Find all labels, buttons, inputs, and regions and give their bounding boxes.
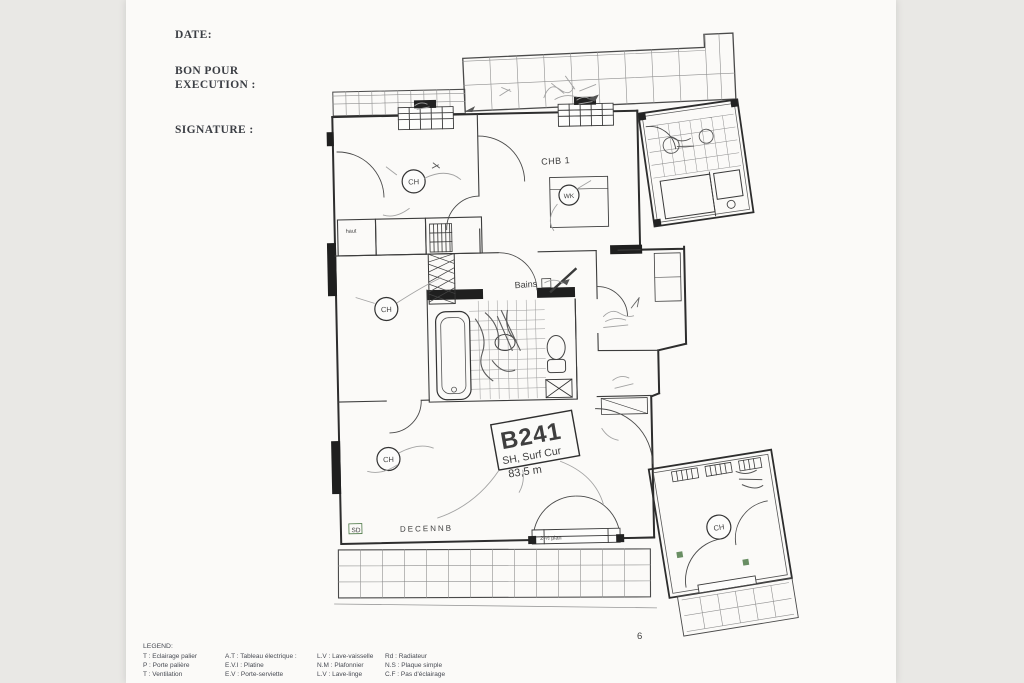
window-north-right [558,96,614,126]
room-southeast: CH [649,450,799,638]
legend-item: C.F : Pas d'éclairage [385,670,445,679]
terrace-top [462,33,736,111]
legend-item: N.M : Plafonnier [317,661,373,670]
legend-item: T : Ventilation [143,670,197,679]
legend-item: P : Porte palière [143,661,197,670]
room-label-bedroom1: CHB 1 [541,155,571,167]
smoke-detector-mark [742,559,749,566]
smoke-detector-mark [676,551,683,558]
legend-item: N.S : Plaque simple [385,661,445,670]
page-number: 6 [637,631,642,642]
legend-title: LEGEND: [143,642,473,651]
wall-fills [325,126,648,495]
terrace-bottom [334,549,656,609]
toilet [547,335,565,359]
closet-hatch [430,224,453,252]
legend-item: A.T : Tableau électrique : [225,652,297,661]
legend-column-4: Rd : Radiateur N.S : Plaque simple C.F :… [385,652,445,679]
lintel-note: 2-½ plan [540,534,562,541]
unit-label-box: B241 SH, Surf Cur [491,410,580,470]
legend-item: L.V : Lave-vaisselle [317,652,373,661]
door-arcs [337,133,654,544]
sd-label: SD [351,527,360,534]
bath-cabinet [546,379,572,398]
heater-label: CH [381,305,392,314]
green-markings: SD DECENNB [349,522,453,535]
heater-label: CH [383,455,394,464]
legend-item: L.V : Lave-linge [317,670,373,679]
legend: LEGEND: T : Eclairage palier P : Porte p… [143,642,473,651]
floor-plan: CH CH CH WK CHB 1 Bains haut B241 SH, Su… [323,32,799,645]
legend-column-1: T : Eclairage palier P : Porte palière T… [143,652,197,679]
vr-label: WK [564,193,575,200]
svg-text:Bains: Bains [514,279,538,291]
interior-walls [332,110,683,420]
legend-column-3: L.V : Lave-vaisselle N.M : Plafonnier L.… [317,652,373,679]
heater-label: CH [408,177,419,186]
window-north-left [398,100,454,130]
legend-item: T : Eclairage palier [143,652,197,661]
bath-tiles [469,300,546,400]
legend-item: E.V : Porte-serviette [225,670,297,679]
balcony-southeast [677,578,798,636]
legend-column-2: A.T : Tableau électrique : E.V.I : Plati… [225,652,297,679]
legend-item: E.V.I : Platine [225,661,297,670]
closet-label: haut [346,229,357,235]
insurance-note: DECENNB [400,524,453,534]
room-northeast [638,99,753,226]
legend-item: Rd : Radiateur [385,652,445,661]
heater-label: CH [713,522,725,533]
floor-plan-drawing: CH CH CH WK CHB 1 Bains haut B241 SH, Su… [0,0,1024,683]
